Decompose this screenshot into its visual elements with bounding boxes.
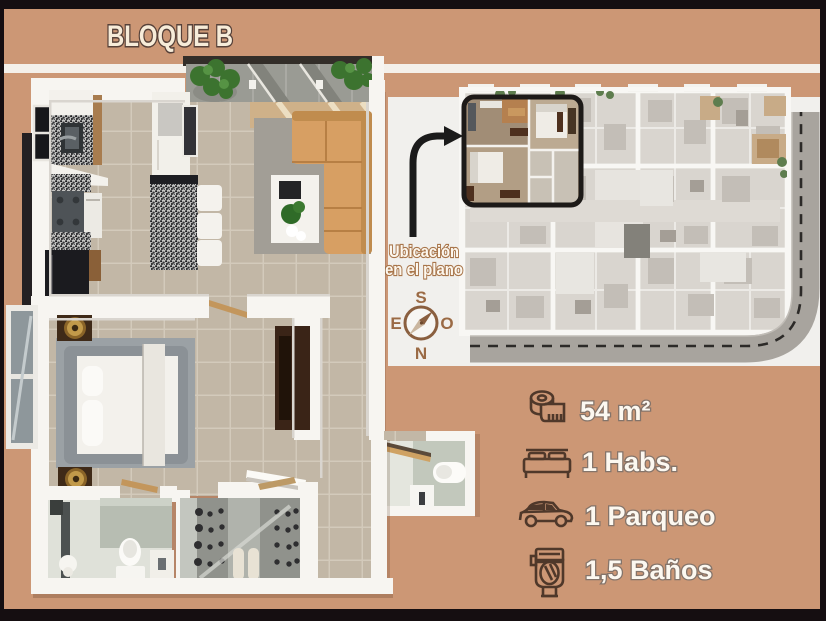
svg-text:1 Habs.: 1 Habs.	[582, 447, 678, 477]
svg-text:1,5 Baños: 1,5 Baños	[585, 555, 713, 585]
svg-text:E: E	[390, 314, 401, 333]
svg-text:N: N	[415, 344, 427, 363]
svg-text:en el plano: en el plano	[385, 260, 463, 279]
svg-text:S: S	[415, 288, 426, 307]
svg-text:1 Parqueo: 1 Parqueo	[585, 501, 716, 531]
svg-text:O: O	[440, 314, 453, 333]
svg-text:Ubicación: Ubicación	[389, 242, 459, 261]
svg-text:BLOQUE B: BLOQUE B	[107, 20, 233, 53]
svg-text:54 m²: 54 m²	[580, 396, 651, 426]
